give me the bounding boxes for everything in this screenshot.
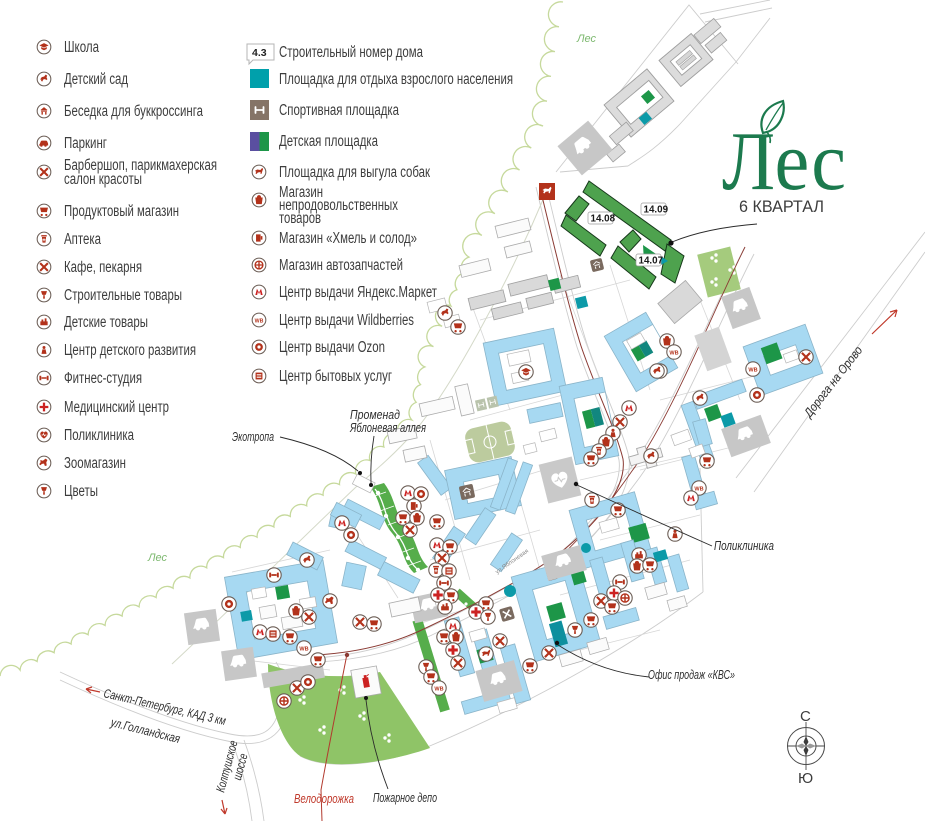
svg-text:Пожарное депо: Пожарное депо (373, 791, 437, 805)
svg-text:С: С (800, 708, 811, 725)
svg-text:Экотропа: Экотропа (232, 430, 274, 444)
svg-text:Велодорожка: Велодорожка (294, 792, 354, 806)
svg-text:Лес: Лес (722, 115, 846, 208)
svg-text:4.3: 4.3 (252, 47, 267, 59)
svg-text:Строительный номер дома: Строительный номер дома (279, 44, 423, 61)
svg-text:Центр выдачи Ozon: Центр выдачи Ozon (279, 339, 385, 356)
svg-text:Центр выдачи Wildberries: Центр выдачи Wildberries (279, 312, 414, 329)
svg-text:Яблоневая аллея: Яблоневая аллея (349, 421, 426, 435)
svg-text:14.07: 14.07 (639, 256, 664, 267)
svg-text:Офис продаж «КВС»: Офис продаж «КВС» (648, 668, 735, 682)
svg-text:Детская площадка: Детская площадка (279, 133, 378, 150)
svg-text:Паркинг: Паркинг (64, 135, 107, 152)
svg-text:Центр выдачи Яндекс.Маркет: Центр выдачи Яндекс.Маркет (279, 284, 437, 301)
svg-text:Магазин автозапчастей: Магазин автозапчастей (279, 257, 403, 274)
svg-text:Магазин «Хмель и солод»: Магазин «Хмель и солод» (279, 230, 417, 247)
svg-text:Поликлиника: Поликлиника (64, 427, 134, 444)
svg-text:товаров: товаров (279, 210, 321, 227)
svg-text:Детский сад: Детский сад (64, 71, 128, 88)
svg-text:Фитнес-студия: Фитнес-студия (64, 370, 142, 387)
svg-text:14.09: 14.09 (644, 205, 669, 216)
svg-text:Площадка для выгула собак: Площадка для выгула собак (279, 164, 430, 181)
svg-text:Кафе, пекарня: Кафе, пекарня (64, 259, 142, 276)
svg-text:6 КВАРТАЛ: 6 КВАРТАЛ (739, 197, 824, 216)
svg-text:14.08: 14.08 (591, 214, 616, 225)
svg-text:ул.Голландская: ул.Голландская (109, 715, 182, 746)
svg-text:Строительные товары: Строительные товары (64, 287, 182, 304)
svg-text:Центр бытовых услуг: Центр бытовых услуг (279, 368, 392, 385)
svg-text:Лес: Лес (147, 552, 168, 564)
svg-text:Продуктовый магазин: Продуктовый магазин (64, 203, 179, 220)
svg-text:Школа: Школа (64, 39, 99, 56)
svg-text:Центр детского развития: Центр детского развития (64, 342, 196, 359)
svg-text:Спортивная площадка: Спортивная площадка (279, 102, 399, 119)
svg-text:Медицинский центр: Медицинский центр (64, 399, 169, 416)
svg-text:Променад: Променад (350, 408, 400, 422)
svg-text:Беседка для буккроссинга: Беседка для буккроссинга (64, 103, 203, 120)
svg-text:Площадка для отдыха взрослого: Площадка для отдыха взрослого населения (279, 71, 513, 88)
svg-text:Ю: Ю (798, 770, 813, 787)
svg-text:Поликлиника: Поликлиника (714, 539, 774, 553)
svg-text:Цветы: Цветы (64, 483, 98, 500)
svg-text:Детские товары: Детские товары (64, 314, 148, 331)
svg-text:Аптека: Аптека (64, 231, 101, 248)
svg-text:салон красоты: салон красоты (64, 171, 142, 188)
svg-text:Зоомагазин: Зоомагазин (64, 455, 126, 472)
svg-text:Лес: Лес (576, 33, 597, 45)
